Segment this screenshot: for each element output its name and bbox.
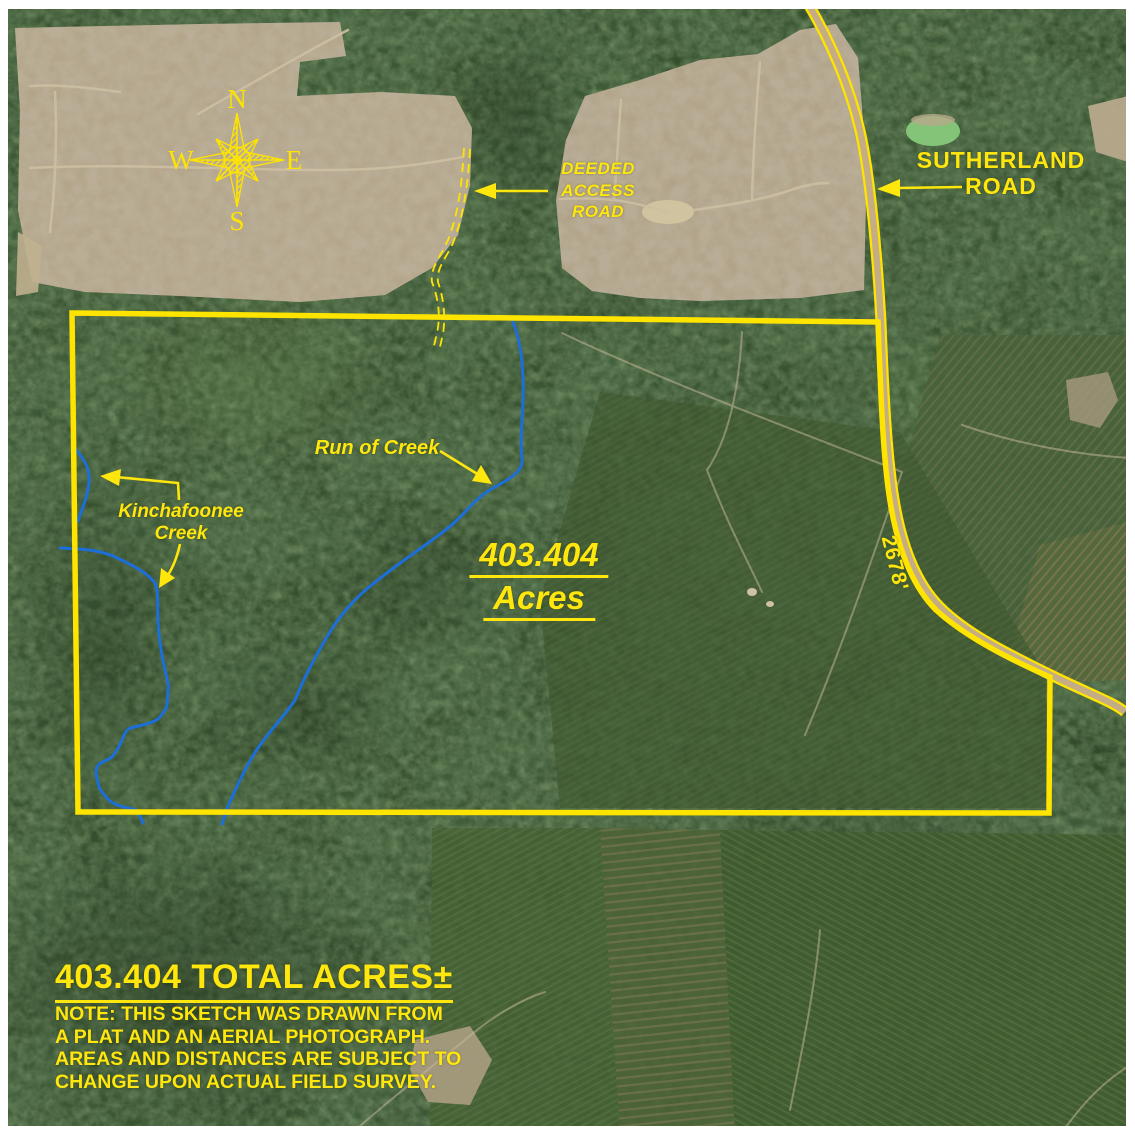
total-acres-title: 403.404 TOTAL ACRES±	[55, 958, 453, 1003]
footer-note-line4: CHANGE UPON ACTUAL FIELD SURVEY.	[55, 1071, 461, 1094]
kinchafoonee-creek-label-line1: Kinchafoonee	[118, 501, 244, 523]
compass-east-label: E	[286, 145, 303, 175]
compass-north-label: N	[227, 84, 247, 114]
sutherland-road-label: SUTHERLAND ROAD	[917, 147, 1085, 199]
compass-south-label: S	[229, 206, 244, 236]
kinchafoonee-creek-label: Kinchafoonee Creek	[118, 501, 244, 544]
survey-sketch: N E S W DEEDED ACCESS ROAD SUTHERLAND RO…	[0, 0, 1135, 1135]
footer-note-line1: NOTE: THIS SKETCH WAS DRAWN FROM	[55, 1003, 461, 1026]
footer-note-line3: AREAS AND DISTANCES ARE SUBJECT TO	[55, 1048, 461, 1071]
deeded-access-road-label: DEEDED ACCESS ROAD	[561, 158, 635, 223]
run-of-creek-label: Run of Creek	[315, 437, 439, 460]
center-acreage-label: 403.404 Acres	[469, 538, 608, 621]
sutherland-road-label-line1: SUTHERLAND	[917, 147, 1085, 173]
deeded-access-road-label-line3: ROAD	[561, 201, 635, 223]
deeded-access-road-label-line1: DEEDED	[561, 158, 635, 180]
deeded-access-road-label-line2: ACCESS	[561, 180, 635, 202]
footer-note-block: 403.404 TOTAL ACRES± NOTE: THIS SKETCH W…	[55, 958, 461, 1093]
kinchafoonee-creek-label-line2: Creek	[118, 523, 244, 545]
center-acreage-value: 403.404	[469, 538, 608, 578]
center-acreage-unit: Acres	[483, 581, 595, 621]
footer-note-line2: A PLAT AND AN AERIAL PHOTOGRAPH.	[55, 1026, 461, 1049]
sutherland-road-label-line2: ROAD	[917, 173, 1085, 199]
compass-west-label: W	[168, 145, 194, 175]
